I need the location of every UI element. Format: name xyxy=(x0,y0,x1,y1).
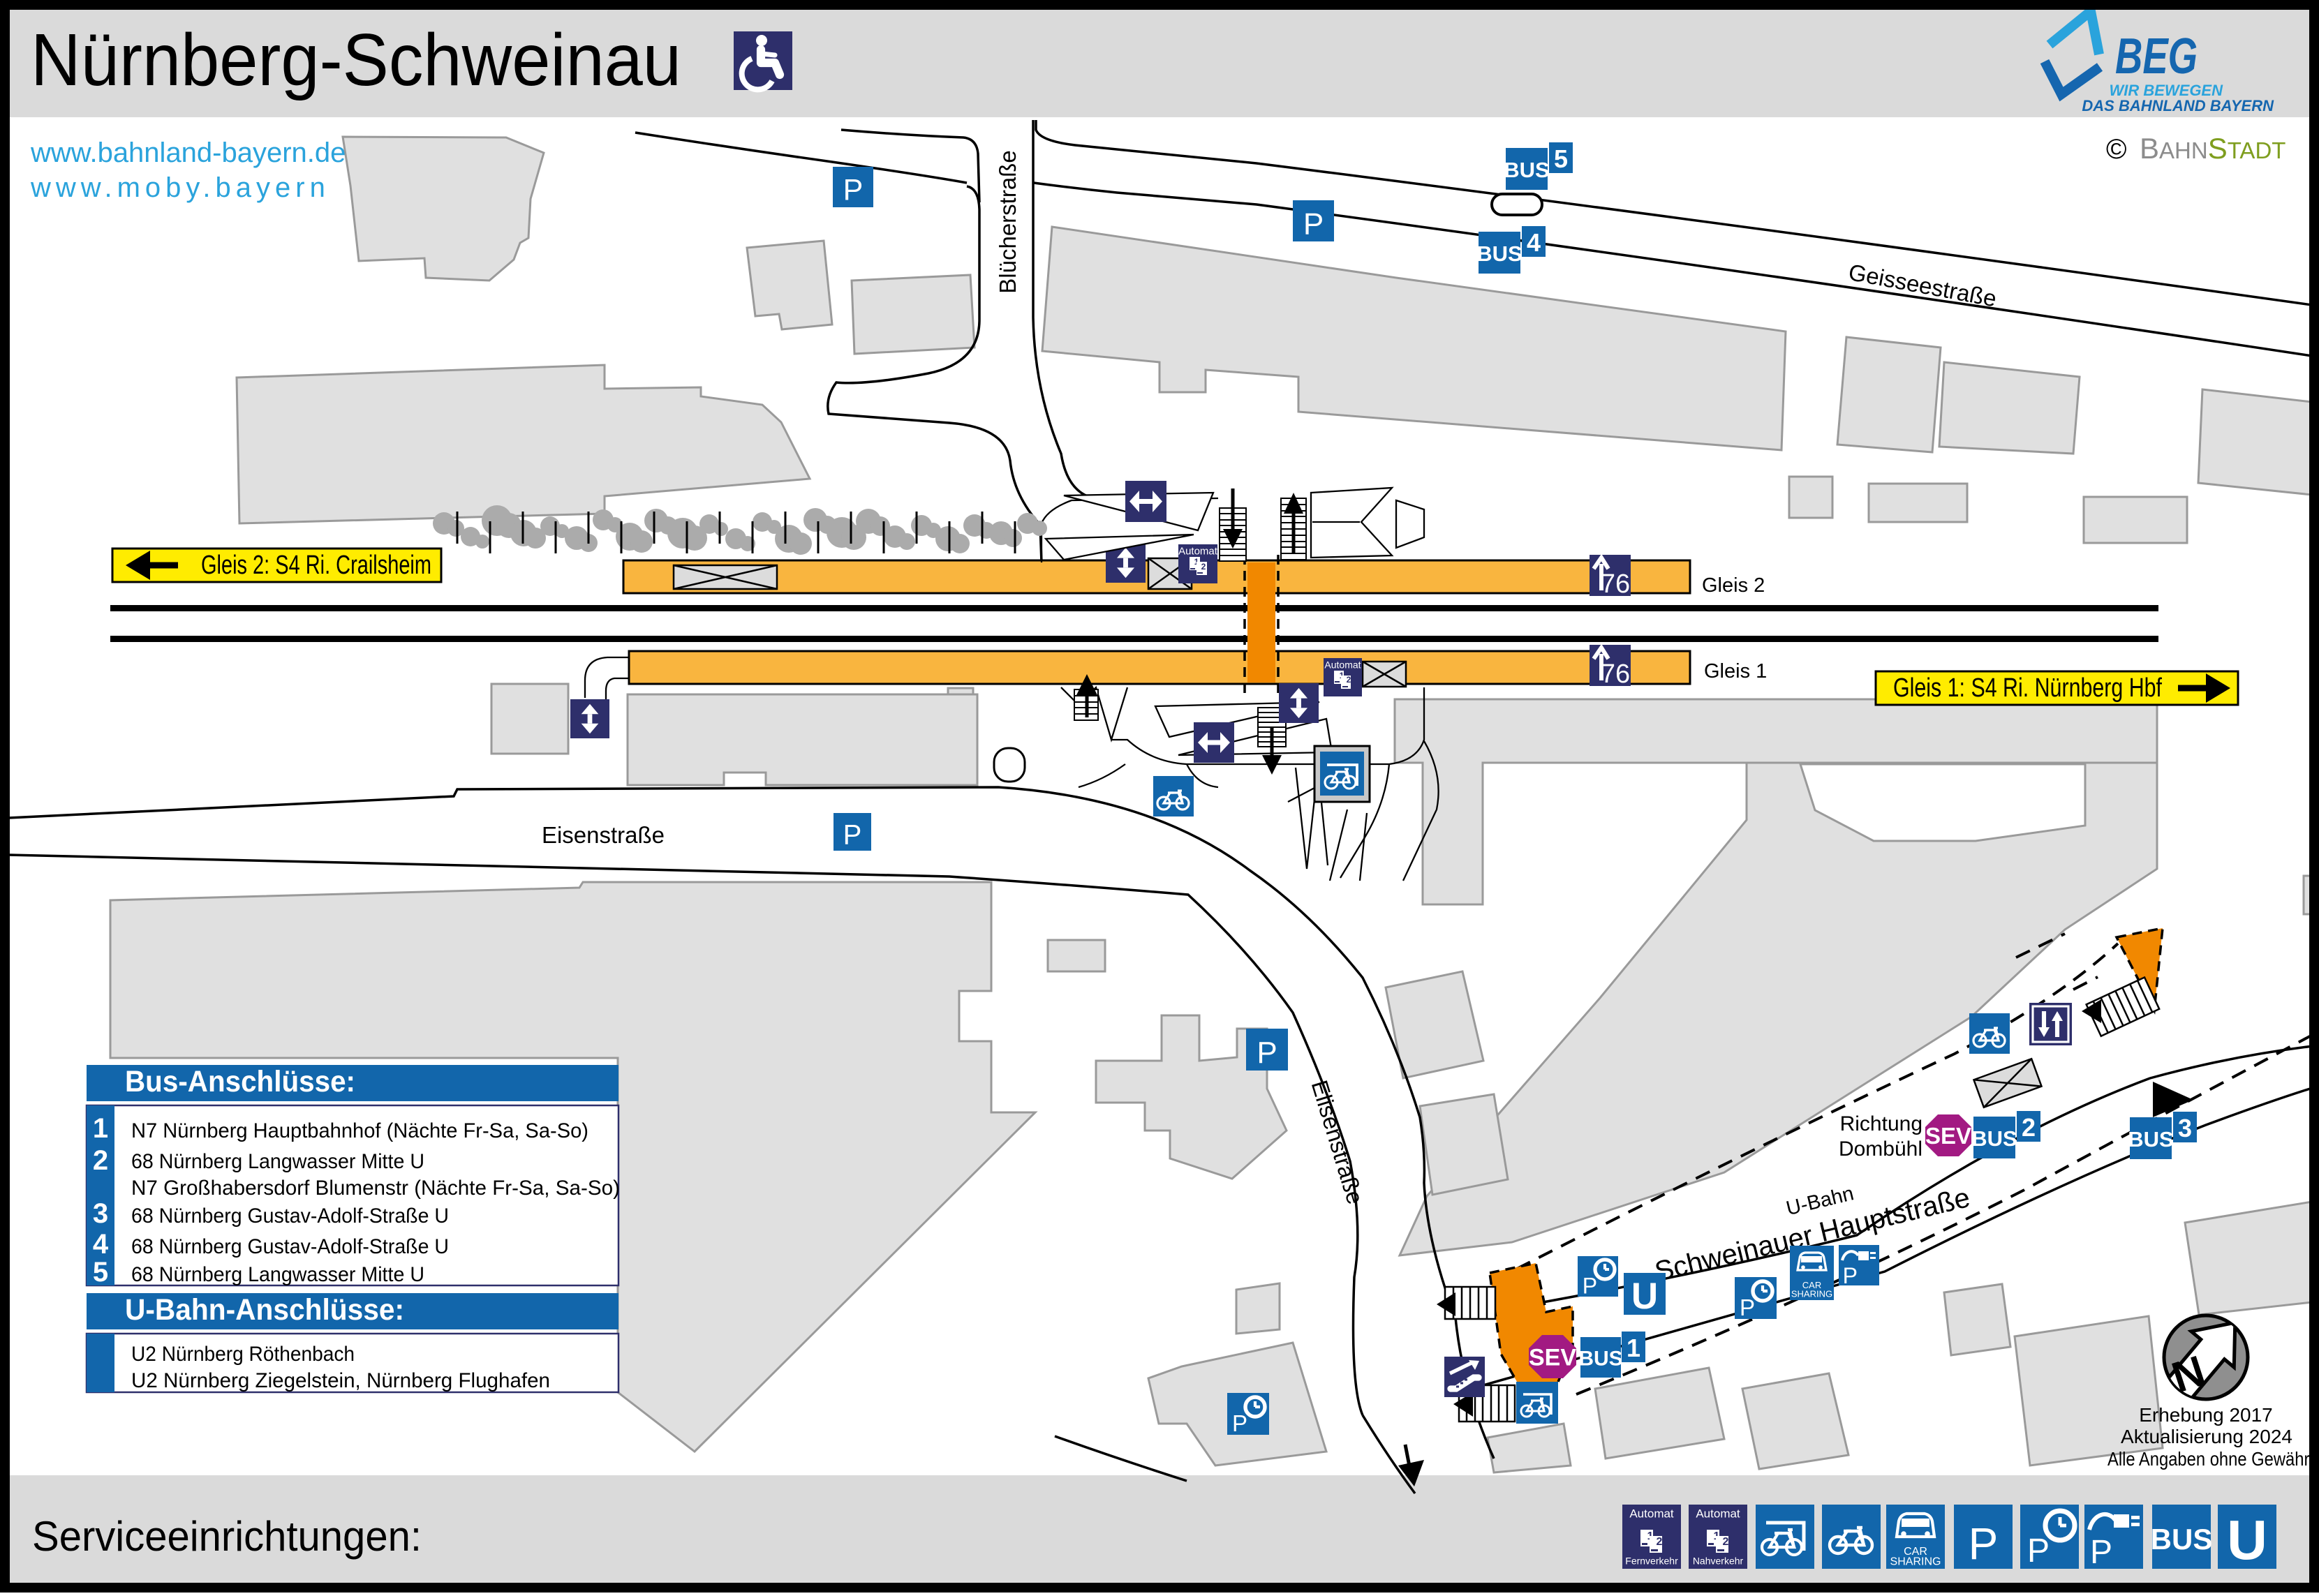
svg-text:3: 3 xyxy=(2178,1114,2192,1142)
svg-text:www.moby.bayern: www.moby.bayern xyxy=(30,172,330,203)
svg-text:Bus-Anschlüsse:: Bus-Anschlüsse: xyxy=(125,1065,355,1098)
svg-text:2: 2 xyxy=(1201,562,1206,572)
svg-text:Automat: Automat xyxy=(1324,659,1361,670)
svg-text:BAHNSTADT: BAHNSTADT xyxy=(2140,132,2285,165)
svg-text:P: P xyxy=(2027,1532,2050,1569)
svg-text:68 Nürnberg Langwasser Mitte U: 68 Nürnberg Langwasser Mitte U xyxy=(131,1263,424,1286)
svg-text:Aktualisierung 2024: Aktualisierung 2024 xyxy=(2121,1426,2292,1447)
svg-text:SHARING: SHARING xyxy=(1890,1556,1941,1567)
svg-text:Erhebung 2017: Erhebung 2017 xyxy=(2139,1404,2273,1426)
svg-text:BUS: BUS xyxy=(1504,158,1549,182)
svg-text:68 Nürnberg Langwasser Mitte U: 68 Nürnberg Langwasser Mitte U xyxy=(131,1150,424,1173)
svg-text:U2 Nürnberg Röthenbach: U2 Nürnberg Röthenbach xyxy=(131,1343,355,1366)
svg-text:P: P xyxy=(1740,1295,1755,1320)
svg-text:U: U xyxy=(2227,1509,2267,1571)
svg-text:2: 2 xyxy=(1347,675,1351,685)
svg-text:SEV: SEV xyxy=(1925,1123,1971,1149)
svg-text:2: 2 xyxy=(1657,1536,1663,1548)
svg-text:P: P xyxy=(1843,1263,1858,1288)
svg-text:68 Nürnberg Gustav-Adolf-Straß: 68 Nürnberg Gustav-Adolf-Straße U xyxy=(131,1235,449,1258)
svg-text:SHARING: SHARING xyxy=(1791,1288,1832,1299)
svg-text:BUS: BUS xyxy=(1578,1348,1622,1371)
svg-text:BEG: BEG xyxy=(2115,29,2198,84)
svg-text:U2 Nürnberg Ziegelstein, Nürnb: U2 Nürnberg Ziegelstein, Nürnberg Flugha… xyxy=(131,1369,550,1392)
svg-text:5: 5 xyxy=(93,1257,108,1288)
svg-text:Eisenstraße: Eisenstraße xyxy=(542,822,665,848)
svg-text:Gleis 1: Gleis 1 xyxy=(1704,660,1767,683)
svg-text:1: 1 xyxy=(93,1113,108,1144)
svg-text:Automat: Automat xyxy=(1629,1507,1674,1520)
svg-text:Automat: Automat xyxy=(1178,546,1218,558)
svg-text:76: 76 xyxy=(1601,569,1630,599)
svg-text:68 Nürnberg Gustav-Adolf-Straß: 68 Nürnberg Gustav-Adolf-Straße U xyxy=(131,1205,449,1228)
svg-text:5: 5 xyxy=(1554,144,1568,173)
svg-text:2: 2 xyxy=(1723,1536,1729,1548)
svg-text:Automat: Automat xyxy=(1696,1507,1740,1520)
svg-text:2: 2 xyxy=(2022,1113,2036,1142)
svg-text:P: P xyxy=(843,174,864,207)
svg-text:P: P xyxy=(2090,1534,2112,1571)
svg-text:BUS: BUS xyxy=(1476,241,1522,266)
svg-text:N7 Großhabersdorf Blumenstr (N: N7 Großhabersdorf Blumenstr (Nächte Fr-S… xyxy=(131,1177,620,1200)
svg-text:Alle Angaben ohne Gewähr!: Alle Angaben ohne Gewähr! xyxy=(2107,1448,2314,1470)
svg-text:76: 76 xyxy=(1601,659,1630,689)
svg-text:P: P xyxy=(1303,207,1324,241)
svg-text:N7 Nürnberg Hauptbahnhof (Näch: N7 Nürnberg Hauptbahnhof (Nächte Fr-Sa, … xyxy=(131,1119,588,1142)
svg-text:Gleis 1: S4 Ri. Nürnberg Hbf: Gleis 1: S4 Ri. Nürnberg Hbf xyxy=(1893,673,2162,703)
svg-text:Nahverkehr: Nahverkehr xyxy=(1693,1556,1744,1567)
svg-text:DAS BAHNLAND BAYERN: DAS BAHNLAND BAYERN xyxy=(2082,97,2274,114)
svg-text:1: 1 xyxy=(1627,1334,1640,1362)
svg-text:P: P xyxy=(1969,1519,1999,1569)
svg-text:©: © xyxy=(2106,134,2126,165)
svg-text:Gleis 2: Gleis 2 xyxy=(1702,574,1765,597)
svg-text:Dombühl: Dombühl xyxy=(1839,1138,1922,1161)
svg-text:4: 4 xyxy=(93,1229,109,1260)
svg-text:U: U xyxy=(1631,1276,1658,1317)
svg-text:4: 4 xyxy=(1527,228,1541,257)
svg-text:P: P xyxy=(1257,1036,1277,1070)
svg-text:2: 2 xyxy=(93,1145,108,1176)
svg-text:BUS: BUS xyxy=(1971,1126,2017,1151)
svg-text:BUS: BUS xyxy=(2151,1523,2213,1556)
svg-text:Nürnberg-Schweinau: Nürnberg-Schweinau xyxy=(31,19,681,101)
svg-text:Richtung: Richtung xyxy=(1840,1112,1922,1135)
svg-text:U-Bahn-Anschlüsse:: U-Bahn-Anschlüsse: xyxy=(125,1293,404,1327)
svg-text:BUS: BUS xyxy=(2128,1127,2173,1151)
svg-text:Serviceeinrichtungen:: Serviceeinrichtungen: xyxy=(32,1513,422,1560)
svg-text:www.bahnland-bayern.de: www.bahnland-bayern.de xyxy=(30,137,346,168)
svg-text:Gleis 2: S4 Ri. Crailsheim: Gleis 2: S4 Ri. Crailsheim xyxy=(201,551,431,580)
svg-text:P: P xyxy=(1583,1273,1597,1298)
svg-text:3: 3 xyxy=(93,1198,108,1229)
svg-text:P: P xyxy=(843,819,862,850)
svg-text:SEV: SEV xyxy=(1529,1344,1576,1371)
svg-text:Blücherstraße: Blücherstraße xyxy=(995,150,1021,293)
svg-text:P: P xyxy=(1232,1410,1247,1436)
svg-text:Fernverkehr: Fernverkehr xyxy=(1625,1556,1678,1567)
